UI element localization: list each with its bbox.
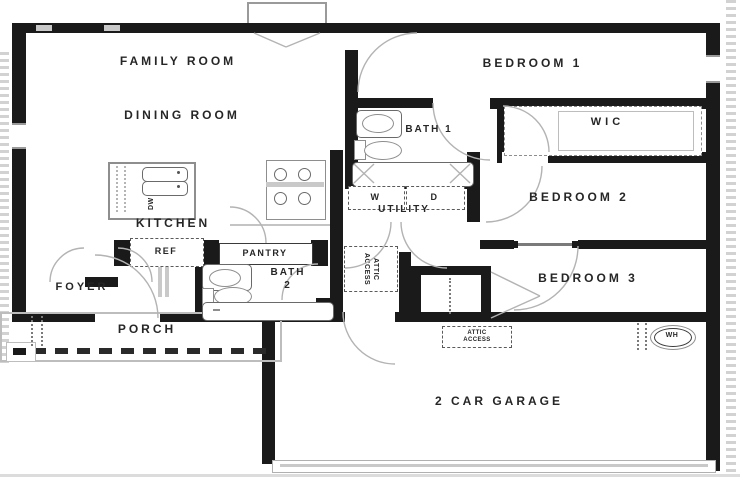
- pantry-wall-right: [311, 240, 328, 266]
- ref-wall-left: [114, 240, 130, 266]
- refrigerator-label: REF: [132, 246, 200, 256]
- label-bath-1: BATH 1: [388, 124, 470, 135]
- attic-access-garage-line2: ACCESS: [443, 337, 511, 344]
- label-bedroom-2: BEDROOM 2: [498, 190, 660, 204]
- washer-label: W: [348, 192, 403, 202]
- window-top-wall-2: [104, 25, 120, 31]
- bed3-closet-top: [411, 266, 491, 275]
- window-left-wall: [12, 123, 26, 149]
- island-dash-1: [116, 166, 118, 212]
- bed3-door-leaf: [516, 243, 574, 246]
- wall-kitchen-hall-upper: [330, 150, 343, 232]
- bath1-tub: [352, 162, 474, 187]
- foyer-opening-jamb2: [165, 263, 169, 297]
- label-wic: WIC: [565, 116, 650, 128]
- sink-basin-1: [142, 167, 188, 182]
- bed3-door-cap2: [572, 241, 580, 248]
- porch-post-core: [13, 348, 26, 355]
- exterior-wall-right-lower: [706, 79, 720, 471]
- label-bath-2-line1: BATH: [252, 266, 324, 279]
- bath2-tub-drain: [213, 309, 220, 311]
- pantry-label: PANTRY: [219, 248, 311, 258]
- island-dash-2: [124, 166, 126, 212]
- bed3-closet-left: [411, 266, 421, 318]
- right-edge-hatch: [726, 0, 736, 474]
- wall-bed1-bath1: [345, 98, 433, 108]
- garage-door-panel: [280, 464, 708, 467]
- wall-bed2-bed3-right: [578, 240, 706, 249]
- attic-access-garage-line1: ATTIC: [443, 330, 511, 337]
- label-bath-2: BATH 2: [252, 266, 324, 292]
- label-utility: UTILITY: [348, 204, 460, 215]
- foyer-opening-jamb1: [158, 263, 162, 297]
- exterior-wall-left-upper: [12, 23, 26, 123]
- bath2-sink-basin: [209, 269, 241, 287]
- window-top-wall-1: [36, 25, 52, 31]
- wh-divider-dots-1: [637, 323, 639, 350]
- window-right-wall: [706, 55, 720, 83]
- bed3-closet-rod: [449, 278, 451, 314]
- dishwasher-label: DW: [148, 194, 155, 214]
- label-bedroom-1: BEDROOM 1: [450, 56, 615, 70]
- label-porch: PORCH: [96, 322, 198, 336]
- bath2-tub: [202, 302, 334, 321]
- exterior-wall-left-lower: [12, 145, 26, 315]
- burner-2: [298, 168, 311, 181]
- bottom-edge-line: [0, 474, 740, 477]
- wall-kitchen-hall-lower: [330, 232, 343, 312]
- south-wall-3: [395, 312, 706, 322]
- burner-4: [298, 192, 311, 205]
- porch-dotline-1: [31, 316, 33, 346]
- wall-hall-right: [399, 252, 411, 312]
- bed3-door-cap1: [510, 241, 518, 248]
- label-kitchen: KITCHEN: [118, 216, 228, 230]
- wall-bed2-bed3-left: [480, 240, 514, 249]
- range-counter-band: [266, 182, 324, 187]
- dryer-label: D: [406, 192, 463, 202]
- attic-access-hall-word1: ATTIC: [372, 258, 379, 281]
- water-heater-label: WH: [654, 332, 690, 339]
- attic-access-hall: ACCESS ATTIC: [344, 246, 398, 292]
- label-garage: 2 CAR GARAGE: [396, 394, 602, 408]
- label-bedroom-3: BEDROOM 3: [512, 271, 664, 285]
- porch-edge-dashes: [33, 348, 268, 354]
- exterior-wall-right-upper: [706, 23, 720, 55]
- faucet-dot-2: [177, 185, 180, 188]
- label-dining-room: DINING ROOM: [92, 108, 272, 122]
- label-family-room: FAMILY ROOM: [88, 54, 268, 68]
- burner-1: [274, 168, 287, 181]
- bed3-closet-right: [481, 266, 491, 318]
- kitchen-counter-edge: [230, 224, 330, 226]
- attic-access-hall-word2: ACCESS: [363, 253, 370, 285]
- faucet-dot-1: [177, 171, 180, 174]
- bath1-toilet-bowl: [364, 141, 402, 160]
- wh-divider-dots-2: [645, 323, 647, 350]
- attic-access-garage: ATTIC ACCESS: [442, 326, 512, 348]
- label-foyer: FOYER: [36, 281, 128, 293]
- porch-dotline-2: [41, 316, 43, 346]
- floorplan-canvas: DW REF PANTRY W D WH ACCESS ATTIC ATTIC …: [0, 0, 740, 480]
- label-bath-2-line2: 2: [252, 279, 324, 292]
- burner-3: [274, 192, 287, 205]
